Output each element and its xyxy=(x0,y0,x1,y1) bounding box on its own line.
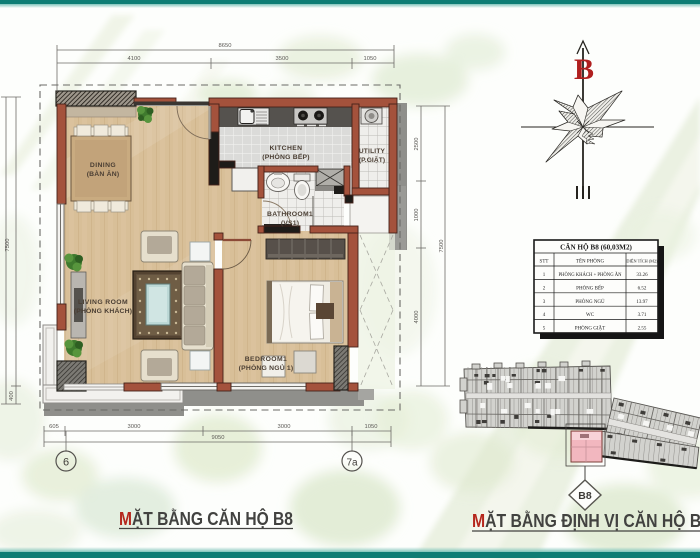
svg-text:MẶT BẰNG ĐỊNH VỊ CĂN HỘ B8: MẶT BẰNG ĐỊNH VỊ CĂN HỘ B8 xyxy=(472,510,700,531)
svg-text:MẶT BẰNG CĂN HỘ B8: MẶT BẰNG CĂN HỘ B8 xyxy=(119,508,293,529)
